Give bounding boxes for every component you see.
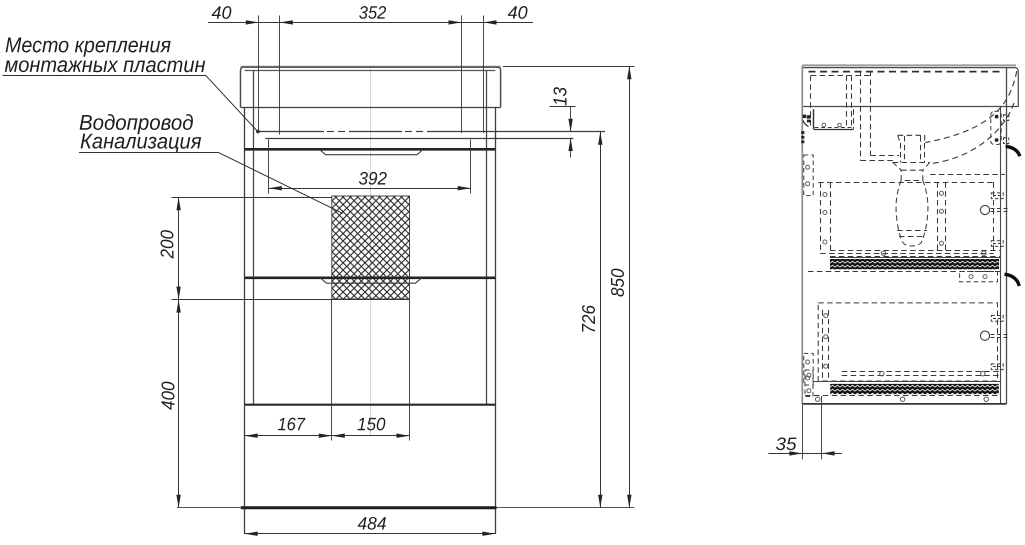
svg-text:167: 167 — [277, 414, 305, 434]
svg-text:13: 13 — [551, 87, 571, 106]
svg-text:40: 40 — [211, 3, 231, 23]
svg-text:392: 392 — [358, 169, 387, 189]
svg-text:Канализация: Канализация — [80, 129, 202, 153]
svg-text:726: 726 — [579, 304, 599, 333]
svg-text:200: 200 — [158, 230, 178, 259]
svg-text:35: 35 — [775, 434, 797, 454]
svg-text:400: 400 — [159, 382, 179, 411]
svg-text:монтажных пластин: монтажных пластин — [4, 53, 205, 77]
svg-text:850: 850 — [608, 269, 628, 298]
svg-text:150: 150 — [357, 414, 386, 434]
svg-text:484: 484 — [357, 514, 386, 534]
svg-text:40: 40 — [508, 3, 528, 23]
svg-text:352: 352 — [359, 3, 387, 23]
